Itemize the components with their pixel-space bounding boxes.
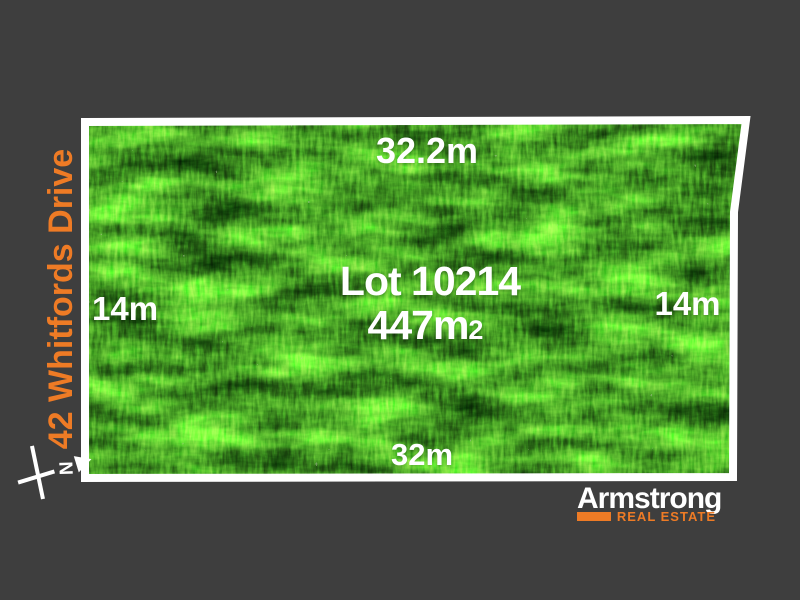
- lot-area-exponent: 2: [468, 315, 482, 345]
- lot-number-label: Lot 10214: [290, 261, 570, 302]
- dimension-right: 14m: [650, 287, 725, 320]
- lot-area-value: 447m: [368, 302, 469, 348]
- lot-area-label: 447m2: [290, 305, 560, 346]
- agency-tagline: REAL ESTATE: [617, 510, 716, 523]
- dimension-bottom: 32m: [352, 439, 492, 470]
- dimension-top: 32.2m: [327, 133, 527, 169]
- listing-canvas: N 32.2m Lot 10214 447m2 14m 14m 32m 42 W…: [0, 0, 800, 600]
- tagline-bar: [577, 512, 611, 521]
- agency-tagline-row: REAL ESTATE: [577, 510, 716, 523]
- street-address-label: 42 Whitfords Drive: [41, 134, 81, 464]
- agency-logo: Armstrong REAL ESTATE: [577, 484, 738, 523]
- dimension-left: 14m: [92, 292, 172, 325]
